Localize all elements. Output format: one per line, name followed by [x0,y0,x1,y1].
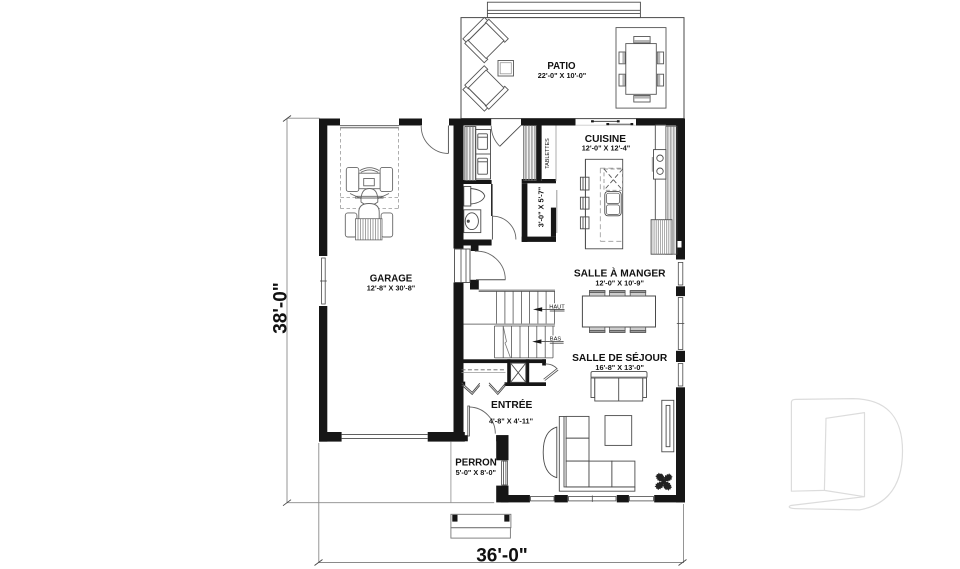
svg-text:TABLETTES: TABLETTES [545,138,551,169]
svg-text:36'-0": 36'-0" [476,545,528,566]
svg-text:HAUT: HAUT [549,304,565,310]
svg-text:12'-0" X 12'-4": 12'-0" X 12'-4" [582,144,631,153]
svg-text:12'-8" X 30'-8": 12'-8" X 30'-8" [367,283,416,292]
svg-text:ENTRÉE: ENTRÉE [491,398,533,411]
svg-text:38'-0": 38'-0" [271,282,292,334]
svg-text:4'-8" X 4'-11": 4'-8" X 4'-11" [489,416,533,425]
svg-text:22'-0" X 10'-0": 22'-0" X 10'-0" [538,71,587,80]
svg-text:BAS: BAS [550,337,562,343]
svg-text:16'-8" X 13'-0": 16'-8" X 13'-0" [595,363,644,372]
svg-text:12'-0" X 10'-9": 12'-0" X 10'-9" [595,279,644,288]
svg-text:3'-0" X 5'-7": 3'-0" X 5'-7" [537,187,546,227]
svg-text:SALLE À MANGER: SALLE À MANGER [574,266,666,279]
svg-text:5'-0" X 8'-0": 5'-0" X 8'-0" [456,468,496,477]
